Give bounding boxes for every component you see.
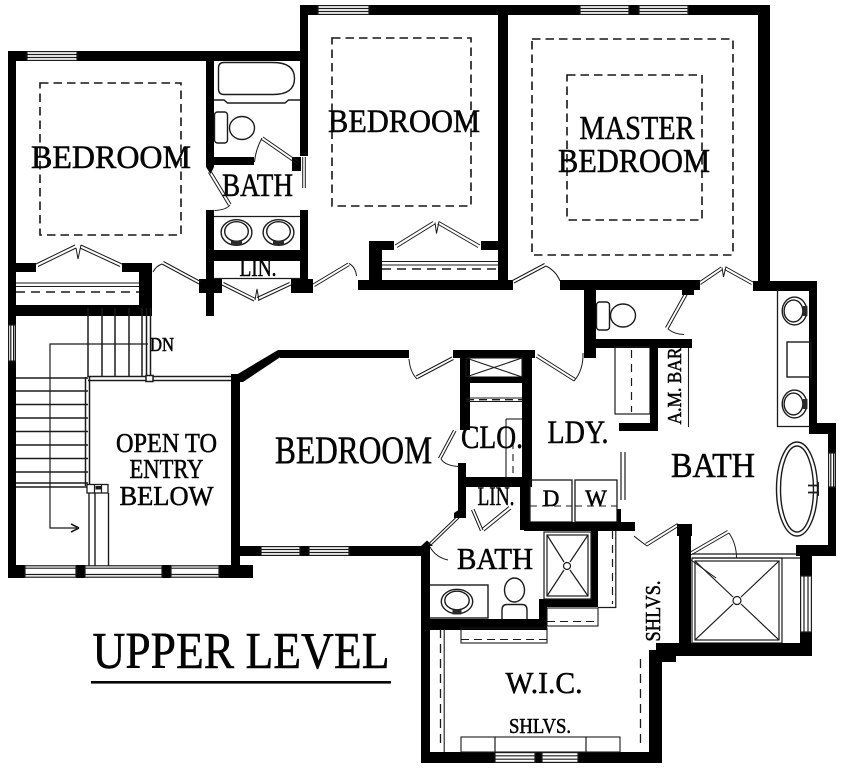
svg-text:BATH: BATH [222,168,293,204]
svg-text:A.M. BAR: A.M. BAR [664,347,686,424]
svg-text:SHLVS.: SHLVS. [509,714,571,738]
svg-text:W: W [585,486,607,511]
svg-text:BATH: BATH [457,541,533,576]
svg-text:ENTRY: ENTRY [130,454,204,484]
svg-text:BELOW: BELOW [120,481,214,511]
svg-text:BEDROOM: BEDROOM [328,104,480,140]
svg-text:BEDROOM: BEDROOM [275,429,432,472]
svg-text:BEDROOM: BEDROOM [31,140,191,176]
svg-text:CLO.: CLO. [461,420,523,456]
svg-text:W.I.C.: W.I.C. [506,665,583,700]
svg-text:DN: DN [150,334,174,356]
svg-text:SHLVS.: SHLVS. [641,581,665,642]
svg-text:UPPER LEVEL: UPPER LEVEL [93,623,390,680]
svg-text:D: D [543,486,560,511]
svg-text:BEDROOM: BEDROOM [558,143,710,180]
svg-text:LDY.: LDY. [548,415,609,451]
svg-text:BATH: BATH [671,446,755,485]
svg-text:MASTER: MASTER [580,110,695,147]
